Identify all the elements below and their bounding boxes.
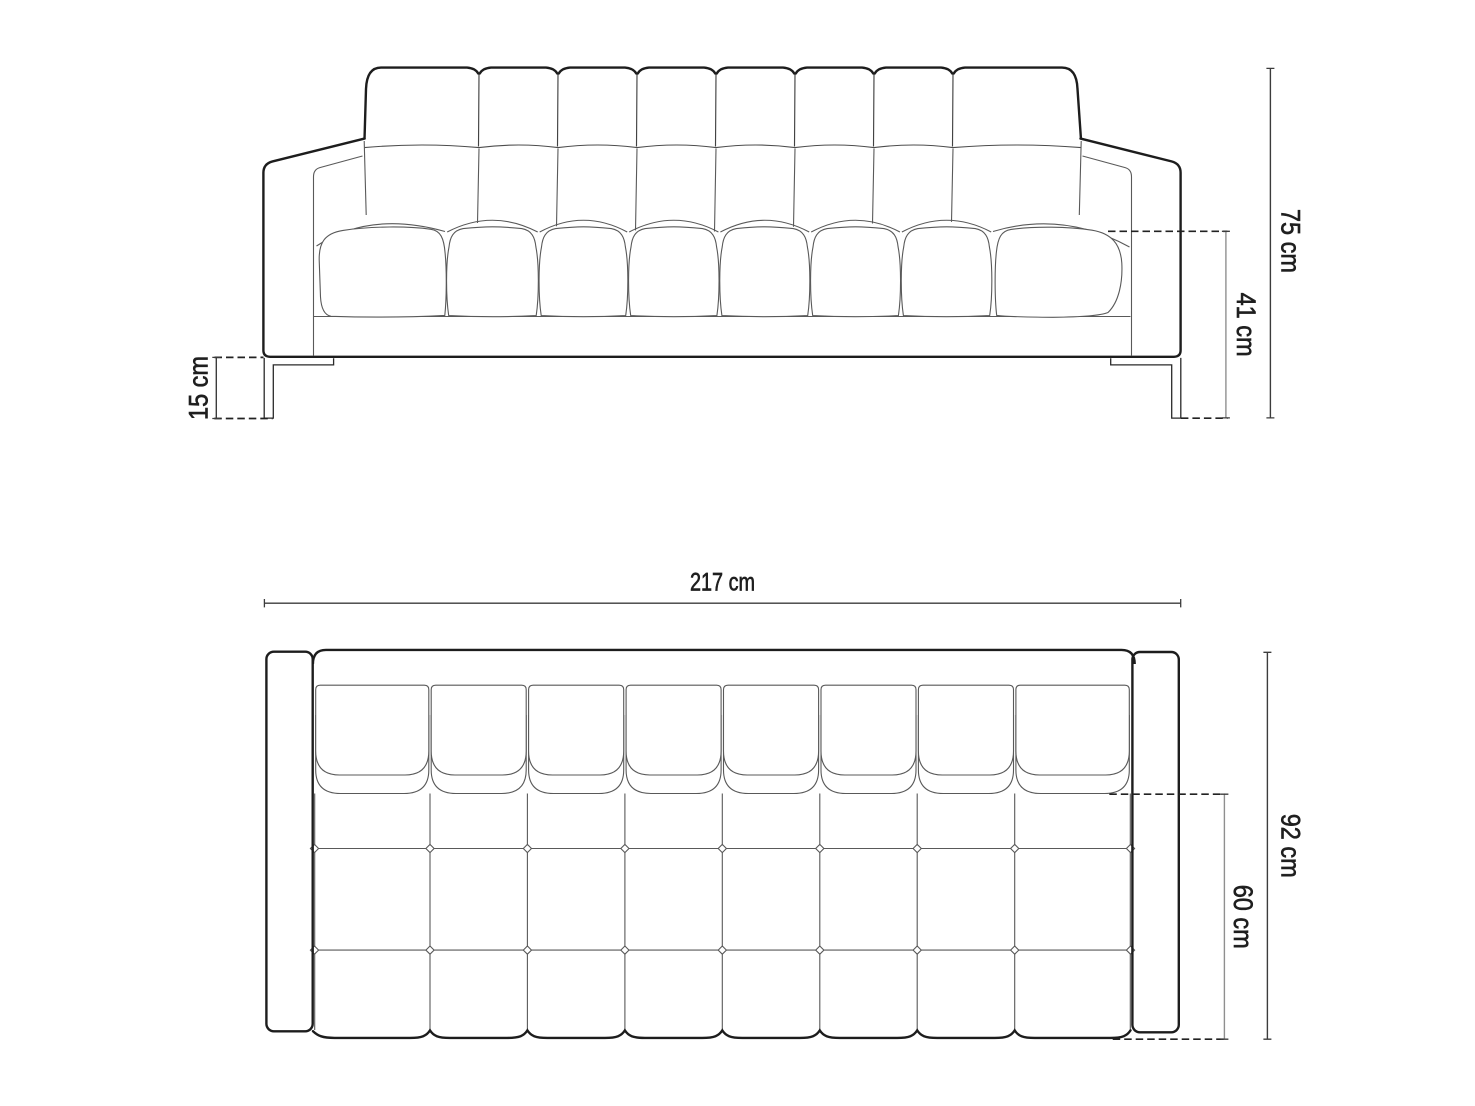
svg-text:75 cm: 75 cm — [1276, 209, 1306, 273]
svg-text:41 cm: 41 cm — [1231, 293, 1261, 357]
svg-text:217 cm: 217 cm — [690, 569, 755, 597]
svg-text:60 cm: 60 cm — [1228, 885, 1258, 949]
svg-text:92 cm: 92 cm — [1276, 814, 1306, 878]
svg-text:15 cm: 15 cm — [184, 356, 214, 420]
